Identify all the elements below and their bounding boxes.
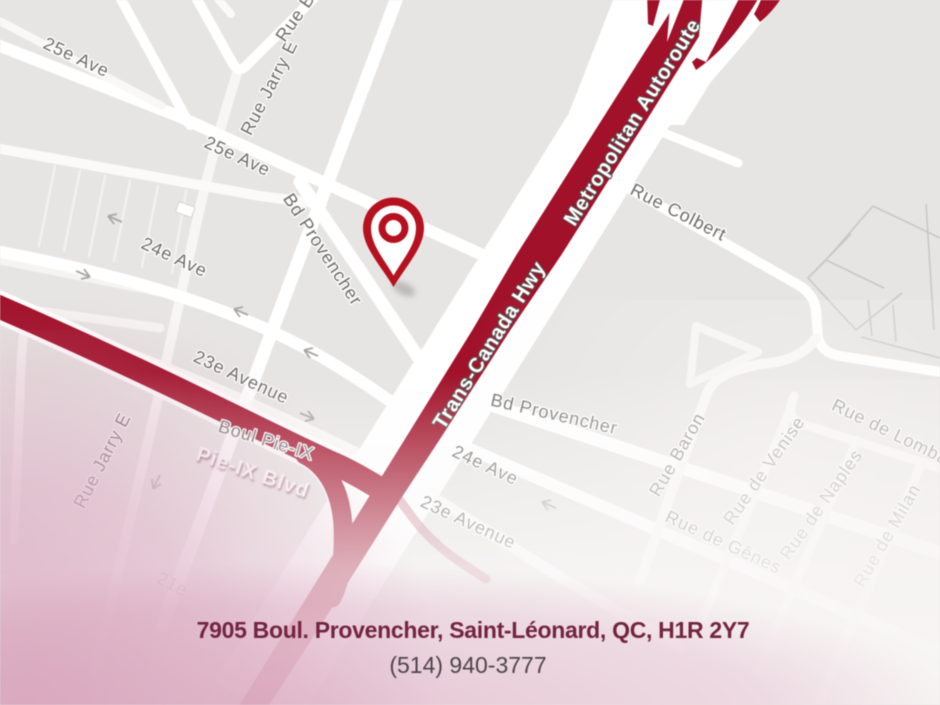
svg-text:(514) 940-3777: (514) 940-3777 bbox=[389, 652, 546, 678]
svg-text:7905 Boul. Provencher, Saint-L: 7905 Boul. Provencher, Saint-Léonard, QC… bbox=[197, 617, 750, 643]
